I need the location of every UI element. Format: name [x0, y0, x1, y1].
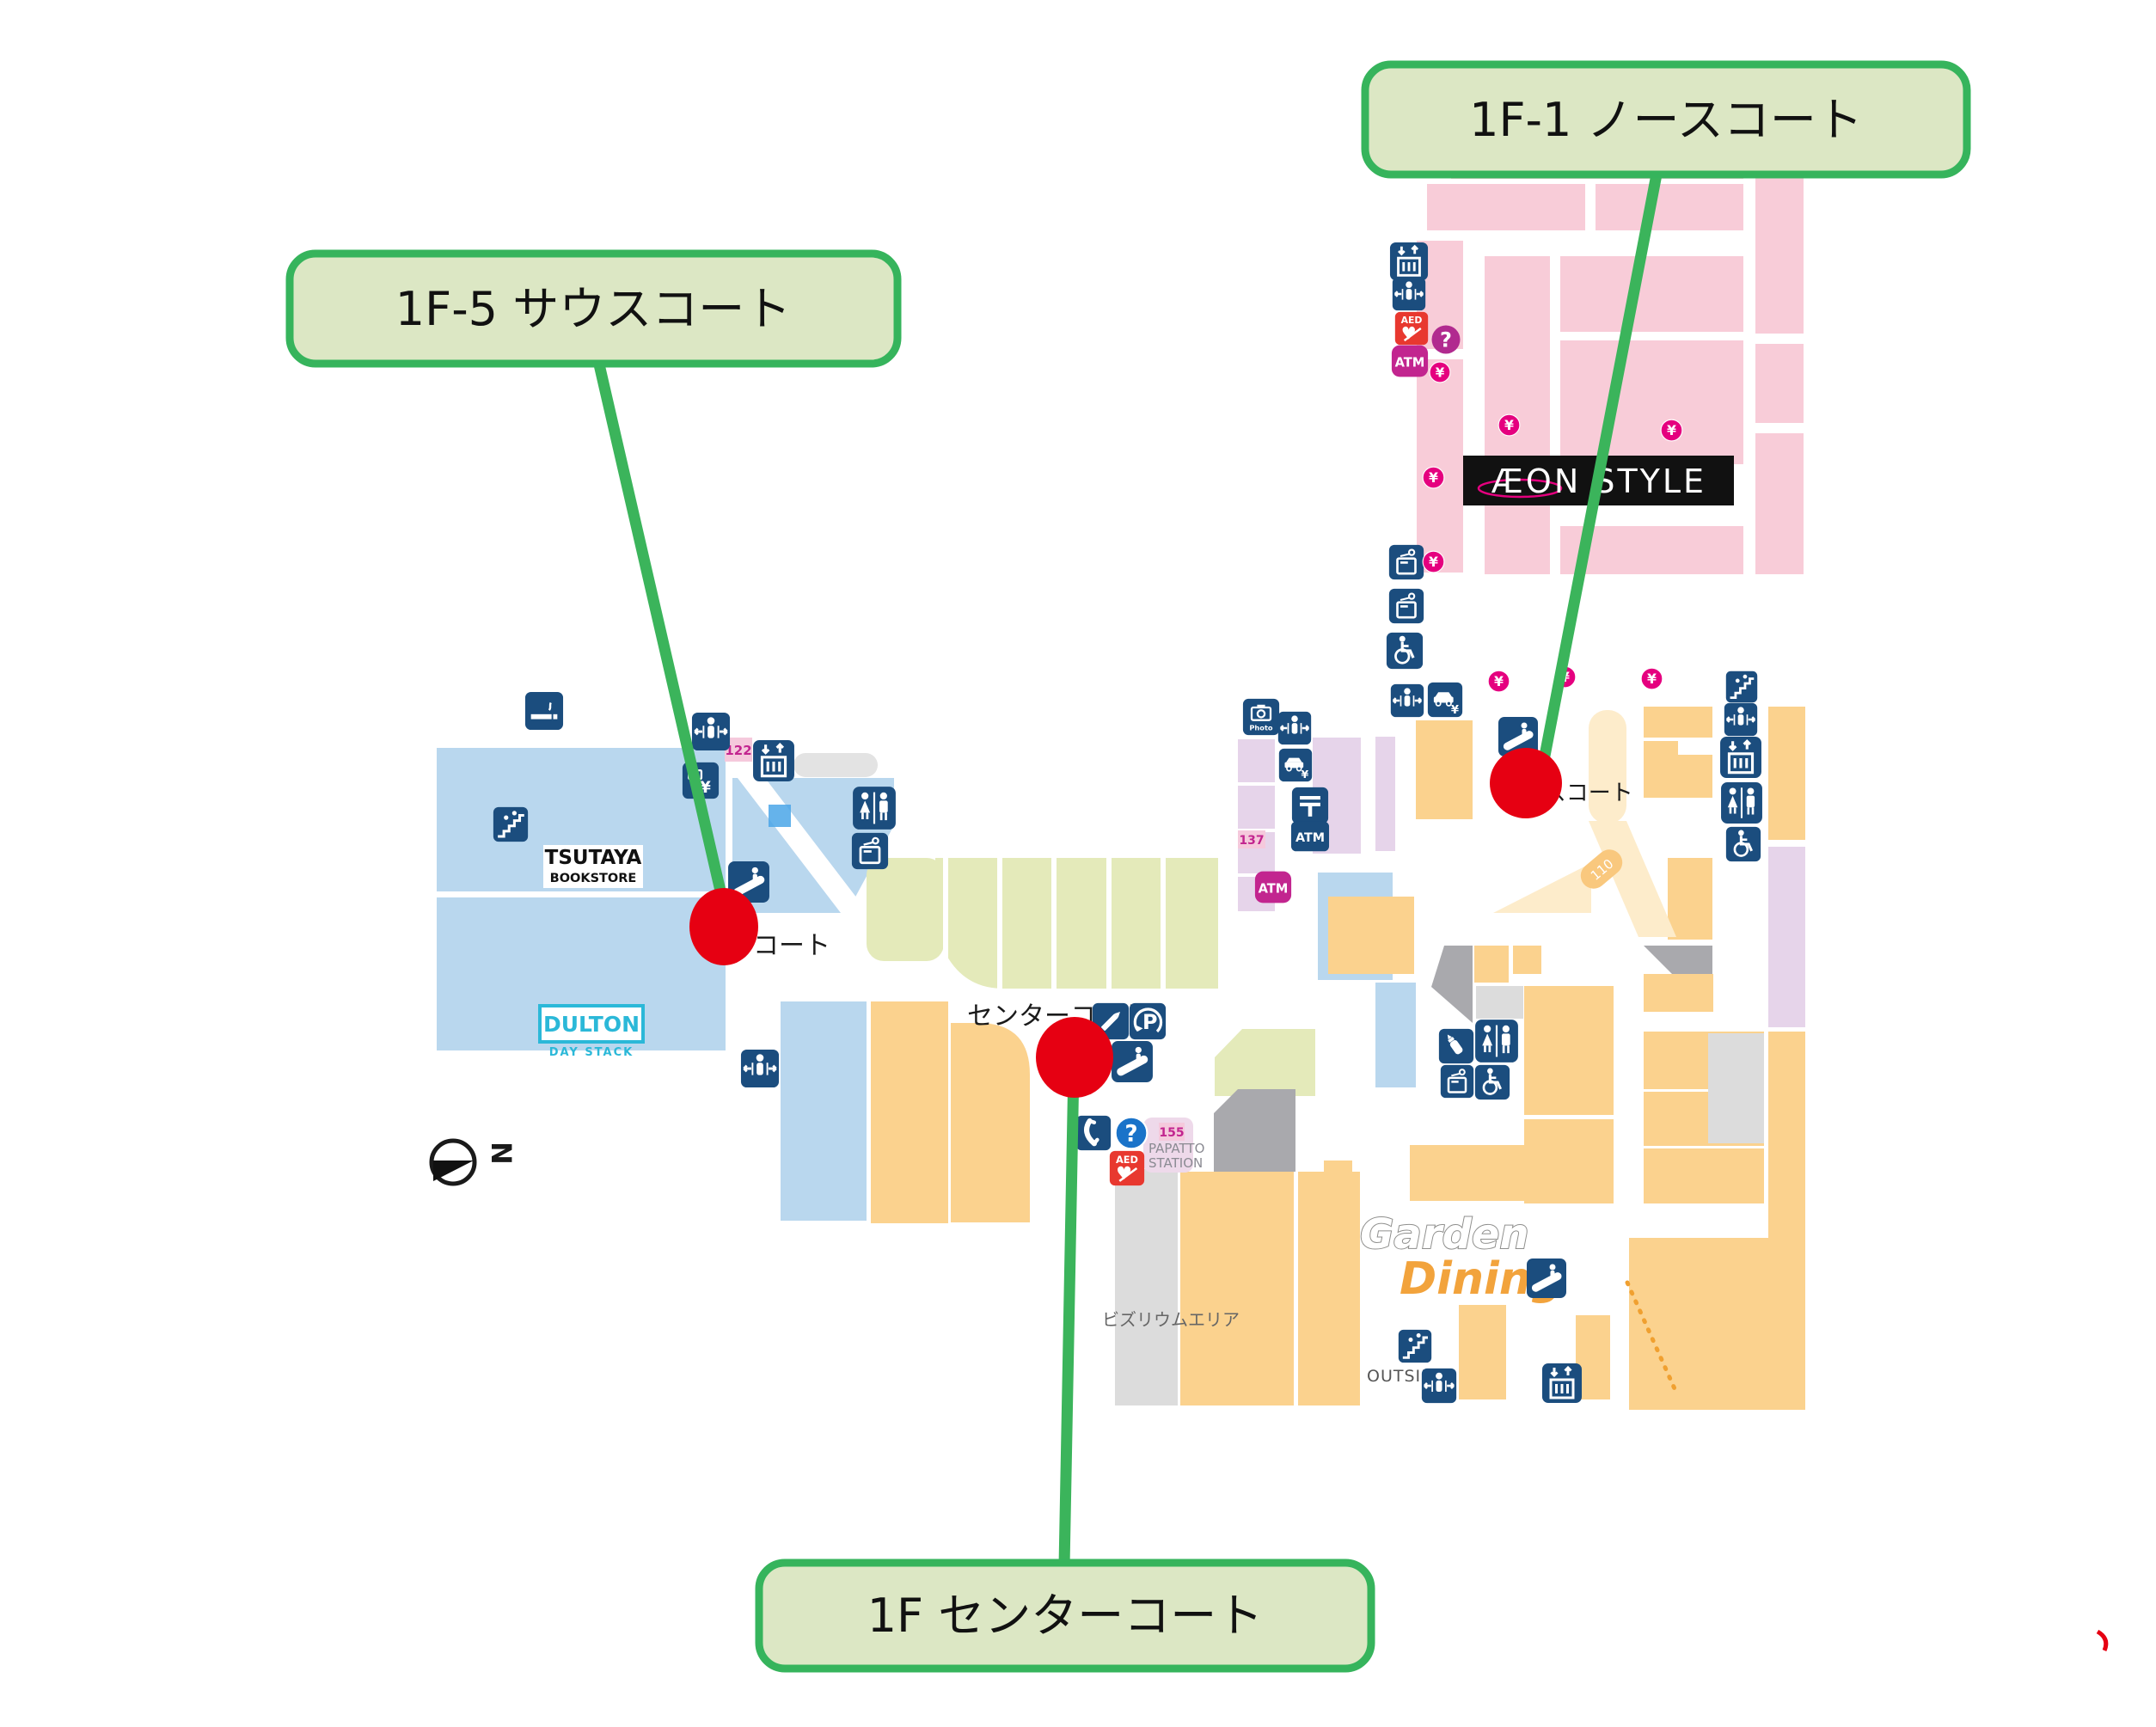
photo-studio-icon [1243, 699, 1279, 735]
callout-line-center [1064, 1068, 1074, 1566]
coin-locker-icon [1389, 589, 1424, 623]
compass: N [432, 1141, 518, 1184]
shop-block [1755, 344, 1804, 423]
smoking-area-icon [525, 692, 563, 730]
information-question-icon [1432, 326, 1461, 354]
shop-block [1644, 1148, 1764, 1203]
shop-block [1485, 256, 1550, 574]
baby-room-icon [1439, 1029, 1473, 1063]
guide-person-icon [1422, 1369, 1456, 1403]
shop-block [1324, 1161, 1352, 1206]
shop-block [1476, 986, 1523, 1019]
shop-block [1459, 1305, 1506, 1399]
south-court-label-part: コート [753, 931, 830, 961]
bizrium-area-label: ビズリウムエリア [1102, 1309, 1240, 1330]
guide-person-icon [1724, 703, 1757, 736]
shop-block [1375, 737, 1395, 851]
shop-block [951, 1023, 1030, 1222]
shop-block [781, 1001, 867, 1221]
escalator-icon [1112, 1041, 1153, 1082]
shop-block [871, 1001, 948, 1223]
shop-block [1768, 1032, 1805, 1410]
yen-service-icon [1423, 551, 1444, 573]
shop-block [1560, 340, 1743, 464]
atm-icon [1291, 822, 1329, 852]
stairs-icon [493, 807, 528, 842]
aeon-style-pink-zone [1417, 156, 1804, 574]
car-rental-icon [1428, 683, 1462, 717]
garden-dining-word1: Garden [1360, 1210, 1529, 1259]
tsutaya-sub: BOOKSTORE [550, 872, 637, 885]
callout-south-label: 1F-5 サウスコート [395, 282, 791, 336]
coin-locker-icon [852, 833, 888, 869]
aed-icon [1395, 312, 1428, 345]
stairs-icon [1726, 671, 1757, 702]
tag-137: 137 [1239, 834, 1264, 848]
shop-block [1768, 707, 1805, 840]
papatto-line2: STATION [1148, 1155, 1203, 1171]
mall-floor-map: AED ♥ ATM ATM ? ? ¥ [0, 0, 2156, 1727]
guide-person-icon [741, 1050, 779, 1087]
toilets-icon [1475, 1020, 1518, 1063]
escalator-icon [1527, 1259, 1566, 1298]
compass-north-letter: N [485, 1142, 518, 1165]
shop-block [1214, 1089, 1295, 1172]
marker-dot-center-court[interactable] [1036, 1017, 1113, 1098]
dulton-name: DULTON [543, 1012, 640, 1037]
phone-icon [1076, 1116, 1111, 1150]
post-office-icon [1292, 787, 1328, 824]
papatto-line1: PAPATTO [1148, 1141, 1204, 1156]
elevator-icon [1720, 737, 1761, 778]
wheelchair-icon [1387, 633, 1423, 669]
hatch-square [769, 805, 791, 827]
callout-center-court[interactable]: 1F センターコート [759, 1563, 1371, 1669]
coin-locker-icon [1389, 545, 1424, 579]
tag-155: 155 [1159, 1126, 1184, 1140]
shop-block [1324, 1307, 1352, 1399]
callout-north-court[interactable]: 1F-1 ノースコート [1365, 64, 1967, 175]
guide-person-icon [692, 713, 730, 750]
callout-north-label: 1F-1 ノースコート [1469, 93, 1863, 147]
yen-service-icon [1661, 420, 1682, 441]
elevator-icon [1542, 1363, 1582, 1403]
information-question-icon [1116, 1118, 1148, 1149]
shop-block [1708, 1033, 1764, 1143]
shop-block [1644, 946, 1712, 974]
marker-dot-south-court[interactable] [689, 888, 758, 965]
shop-block [1427, 184, 1585, 230]
dulton-sub: DAY STACK [549, 1046, 634, 1059]
yen-service-icon [1641, 668, 1663, 689]
accessible-toilet-icon [1475, 1065, 1510, 1099]
toilets-icon [1721, 782, 1762, 824]
toilets-icon [853, 787, 896, 830]
yen-service-icon [1488, 671, 1510, 692]
tsutaya-name: TSUTAYA [545, 847, 642, 869]
stairs-icon [1399, 1330, 1431, 1363]
yen-service-icon [1430, 362, 1450, 383]
bizrium-strip [1115, 1169, 1178, 1405]
shop-block [867, 858, 944, 961]
aed-icon [1110, 1151, 1144, 1185]
car-rental-icon [1279, 749, 1312, 781]
shop-block [1678, 755, 1712, 798]
wheelchair-icon [1726, 827, 1761, 861]
guide-person-icon [1391, 684, 1424, 717]
shop-block [1644, 974, 1713, 1012]
shop-block [1524, 986, 1614, 1115]
shop-block [1474, 946, 1509, 983]
parking-icon [1130, 1003, 1166, 1039]
shop-block [1410, 1145, 1582, 1201]
shop-block [1375, 983, 1416, 1087]
shop-block [1417, 359, 1463, 573]
guide-person-icon [1278, 712, 1311, 744]
shop-block [1328, 897, 1414, 974]
shop-block [1513, 946, 1541, 974]
shop-block [1560, 256, 1743, 332]
callout-center-label: 1F センターコート [867, 1589, 1264, 1643]
yen-service-icon [1498, 414, 1520, 436]
shop-block [1180, 1172, 1294, 1405]
guide-person-icon [1393, 278, 1425, 310]
shop-block [1431, 946, 1473, 1023]
atm-icon [1392, 346, 1428, 377]
shop-block [1755, 156, 1804, 334]
entrance-band [793, 753, 878, 777]
yen-service-icon [1423, 467, 1444, 488]
elevator-icon [753, 740, 794, 781]
walkway-shape [1493, 863, 1591, 913]
shop-block [1768, 847, 1805, 1027]
shop-block [1755, 433, 1804, 574]
shop-block [1416, 720, 1473, 819]
shop-block [1668, 858, 1712, 940]
walkway-shape [1589, 710, 1626, 824]
marker-dot-north-court[interactable] [1490, 748, 1562, 818]
shop-strip [935, 858, 1218, 989]
stray-mark [2098, 1632, 2106, 1650]
callout-south-court[interactable]: 1F-5 サウスコート [290, 254, 897, 364]
shop-block [1215, 1029, 1315, 1096]
atm-icon [1255, 872, 1291, 903]
shop-block [1596, 184, 1743, 230]
coin-locker-icon [1441, 1065, 1473, 1098]
shop-block [1644, 741, 1678, 798]
shop-block [1644, 707, 1712, 738]
elevator-icon [1390, 242, 1428, 280]
